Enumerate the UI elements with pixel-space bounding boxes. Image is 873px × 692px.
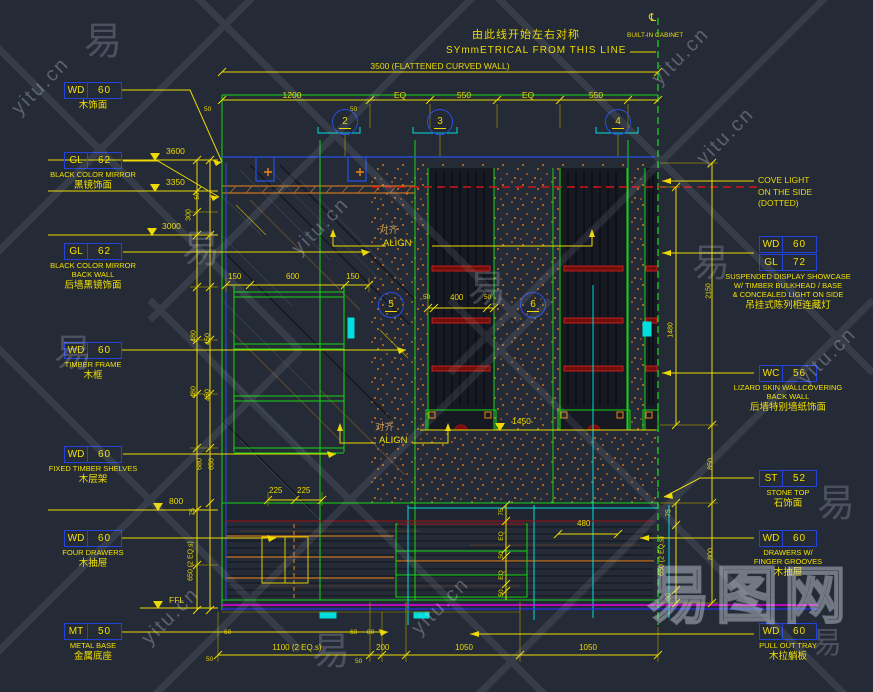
level-1450: 1450 xyxy=(512,417,531,426)
tag-wc-56[interactable]: WC56 xyxy=(759,365,817,382)
dim-eq-c1: EQ xyxy=(499,531,506,540)
level-800: 800 xyxy=(169,497,183,506)
dim-1200: 1200 xyxy=(262,91,322,100)
level-3600: 3600 xyxy=(166,147,185,156)
align-2-en: ALIGN xyxy=(379,436,408,446)
dim-1480: 1480 xyxy=(668,322,675,338)
tag-st-52[interactable]: ST52 xyxy=(759,470,817,487)
tag-gl-62[interactable]: GL62 xyxy=(64,152,122,169)
tag-wd-60-showcase[interactable]: WD60 xyxy=(759,236,817,253)
dim-450-b: 450 xyxy=(205,389,212,401)
dim-1050-b: 1050 xyxy=(566,644,610,652)
dim-eq-2: EQ xyxy=(518,91,538,100)
tag-gl-72-showcase[interactable]: GL72 xyxy=(759,254,817,271)
dim-60-right: 60 xyxy=(666,593,673,601)
callout-timber-frame: WD60 TIMBER FRAME 木框 xyxy=(28,342,158,381)
dim-850: 850 xyxy=(708,458,715,470)
align-2-cn: 对齐 xyxy=(375,423,394,433)
callout-pull-out-tray: WD60 PULL OUT TRAY 木拉躺板 xyxy=(723,623,853,662)
dim-1100-2eq: 1100 (2 EQ.s) xyxy=(252,644,342,652)
align-1-cn: 对齐 xyxy=(379,226,398,236)
dim-300: 300 xyxy=(186,209,193,221)
dim-800-right: 800 xyxy=(708,548,715,560)
level-3000: 3000 xyxy=(162,222,181,231)
cad-drawing-page: 由此线开始左右对称 SYmmETRICAL FROM THIS LINE BUI… xyxy=(0,0,873,692)
tag-wd-60-drawers[interactable]: WD60 xyxy=(64,530,122,547)
callout-lizard-skin-wall: WC56 LIZARD SKIN WALLCOVERING BACK WALL … xyxy=(723,365,853,413)
dim-60-bottom-a: 60 xyxy=(224,630,231,637)
tag-wd-60-shelves[interactable]: WD60 xyxy=(64,446,122,463)
dim-200: 200 xyxy=(376,644,389,652)
callout-finger-groove-drawers: WD60 DRAWERS W/ FINGER GROOVES 木抽屉 xyxy=(723,530,853,578)
dim-eq-1: EQ xyxy=(390,91,410,100)
dim-600: 600 xyxy=(286,273,299,281)
dim-450-a: 450 xyxy=(205,333,212,345)
dim-400: 400 xyxy=(450,294,463,302)
dim-50-bottom-b: 50 xyxy=(355,659,362,666)
dim-550-b: 550 xyxy=(582,91,610,100)
align-1-en: ALIGN xyxy=(383,239,412,249)
callout-black-mirror-back-wall: GL62 BLACK COLOR MIRROR BACK WALL 后墙黑镜饰面 xyxy=(28,243,158,291)
dim-50-case-b: 50 xyxy=(484,295,491,302)
dim-60-bottom-b: 60 xyxy=(350,630,357,637)
callout-fixed-shelves: WD60 FIXED TIMBER SHELVES 木层架 xyxy=(28,446,158,485)
dim-eq-c2: EQ xyxy=(499,570,506,579)
dim-225-a: 225 xyxy=(269,487,282,495)
symmetry-note-en: SYmmETRICAL FROM THIS LINE xyxy=(446,46,626,56)
section-bubble-4[interactable]: 4 xyxy=(605,109,631,135)
dim-2150: 2150 xyxy=(706,283,713,299)
level-3350: 3350 xyxy=(166,178,185,187)
section-bubble-2[interactable]: 2 xyxy=(332,109,358,135)
tag-gl-62-back[interactable]: GL62 xyxy=(64,243,122,260)
dim-680: 680 xyxy=(197,458,204,470)
tag-wd-60-finger[interactable]: WD60 xyxy=(759,530,817,547)
dim-75-right: 75 xyxy=(666,509,673,517)
dim-480-b: 480 xyxy=(191,386,198,398)
level-ffl: FFL xyxy=(169,596,184,605)
symmetry-note-cn: 由此线开始左右对称 xyxy=(460,30,592,41)
centerline-symbol: ℄ xyxy=(649,13,656,24)
section-bubble-3[interactable]: 3 xyxy=(427,109,453,135)
callout-metal-base: MT50 METAL BASE 金属底座 xyxy=(28,623,158,662)
callout-four-drawers: WD60 FOUR DRAWERS 木抽屉 xyxy=(28,530,158,569)
dim-650: 650 xyxy=(209,458,216,470)
callout-black-mirror: GL62 BLACK COLOR MIRROR 黑镜饰面 xyxy=(28,152,158,191)
dim-50-top-a: 50 xyxy=(204,107,211,114)
callout-suspended-showcase: WD60 GL72 SUSPENDED DISPLAY SHOWCASE W/ … xyxy=(723,236,853,311)
dim-1050-a: 1050 xyxy=(442,644,486,652)
tag-wd-60-frame[interactable]: WD60 xyxy=(64,342,122,359)
dim-225-b: 225 xyxy=(297,487,310,495)
dim-480-a: 480 xyxy=(191,330,198,342)
dim-480-drawer: 480 xyxy=(577,520,590,528)
dim-50-c2: 50 xyxy=(499,589,506,596)
dim-50-case-a: 50 xyxy=(423,295,430,302)
dim-50-left: 50 xyxy=(195,192,202,199)
tag-mt-50[interactable]: MT50 xyxy=(64,623,122,640)
callout-stone-top: ST52 STONE TOP 石饰面 xyxy=(723,470,853,509)
dim-650-2eq-left: 650 (2 EQ.s) xyxy=(188,541,195,581)
dim-50-bottom-a: 50 xyxy=(206,657,213,664)
dim-150-b: 150 xyxy=(346,273,359,281)
tag-wd-60[interactable]: WD60 xyxy=(64,82,122,99)
dim-50-c1: 50 xyxy=(499,551,506,558)
dim-75-left: 75 xyxy=(190,508,197,516)
callout-cove-light: COVE LIGHT ON THE SIDE (DOTTED) xyxy=(758,176,812,208)
dim-75-center: 75 xyxy=(499,508,506,515)
callout-wood-finish: WD60 木饰面 xyxy=(28,82,158,111)
dim-650-2eq-right: 650 (2 EQ.s) xyxy=(659,536,666,576)
built-in-cabinet-label: BUILT-IN CABINET xyxy=(627,33,683,40)
tag-wd-60-tray[interactable]: WD60 xyxy=(759,623,817,640)
dim-80-bottom: 80 xyxy=(367,630,374,637)
dim-overall-width: 3500 (FLATTENED CURVED WALL) xyxy=(337,62,543,71)
dim-150-a: 150 xyxy=(228,273,241,281)
dim-550-a: 550 xyxy=(450,91,478,100)
section-bubble-5[interactable]: 5 xyxy=(378,292,404,318)
section-bubble-6[interactable]: 6 xyxy=(520,292,546,318)
